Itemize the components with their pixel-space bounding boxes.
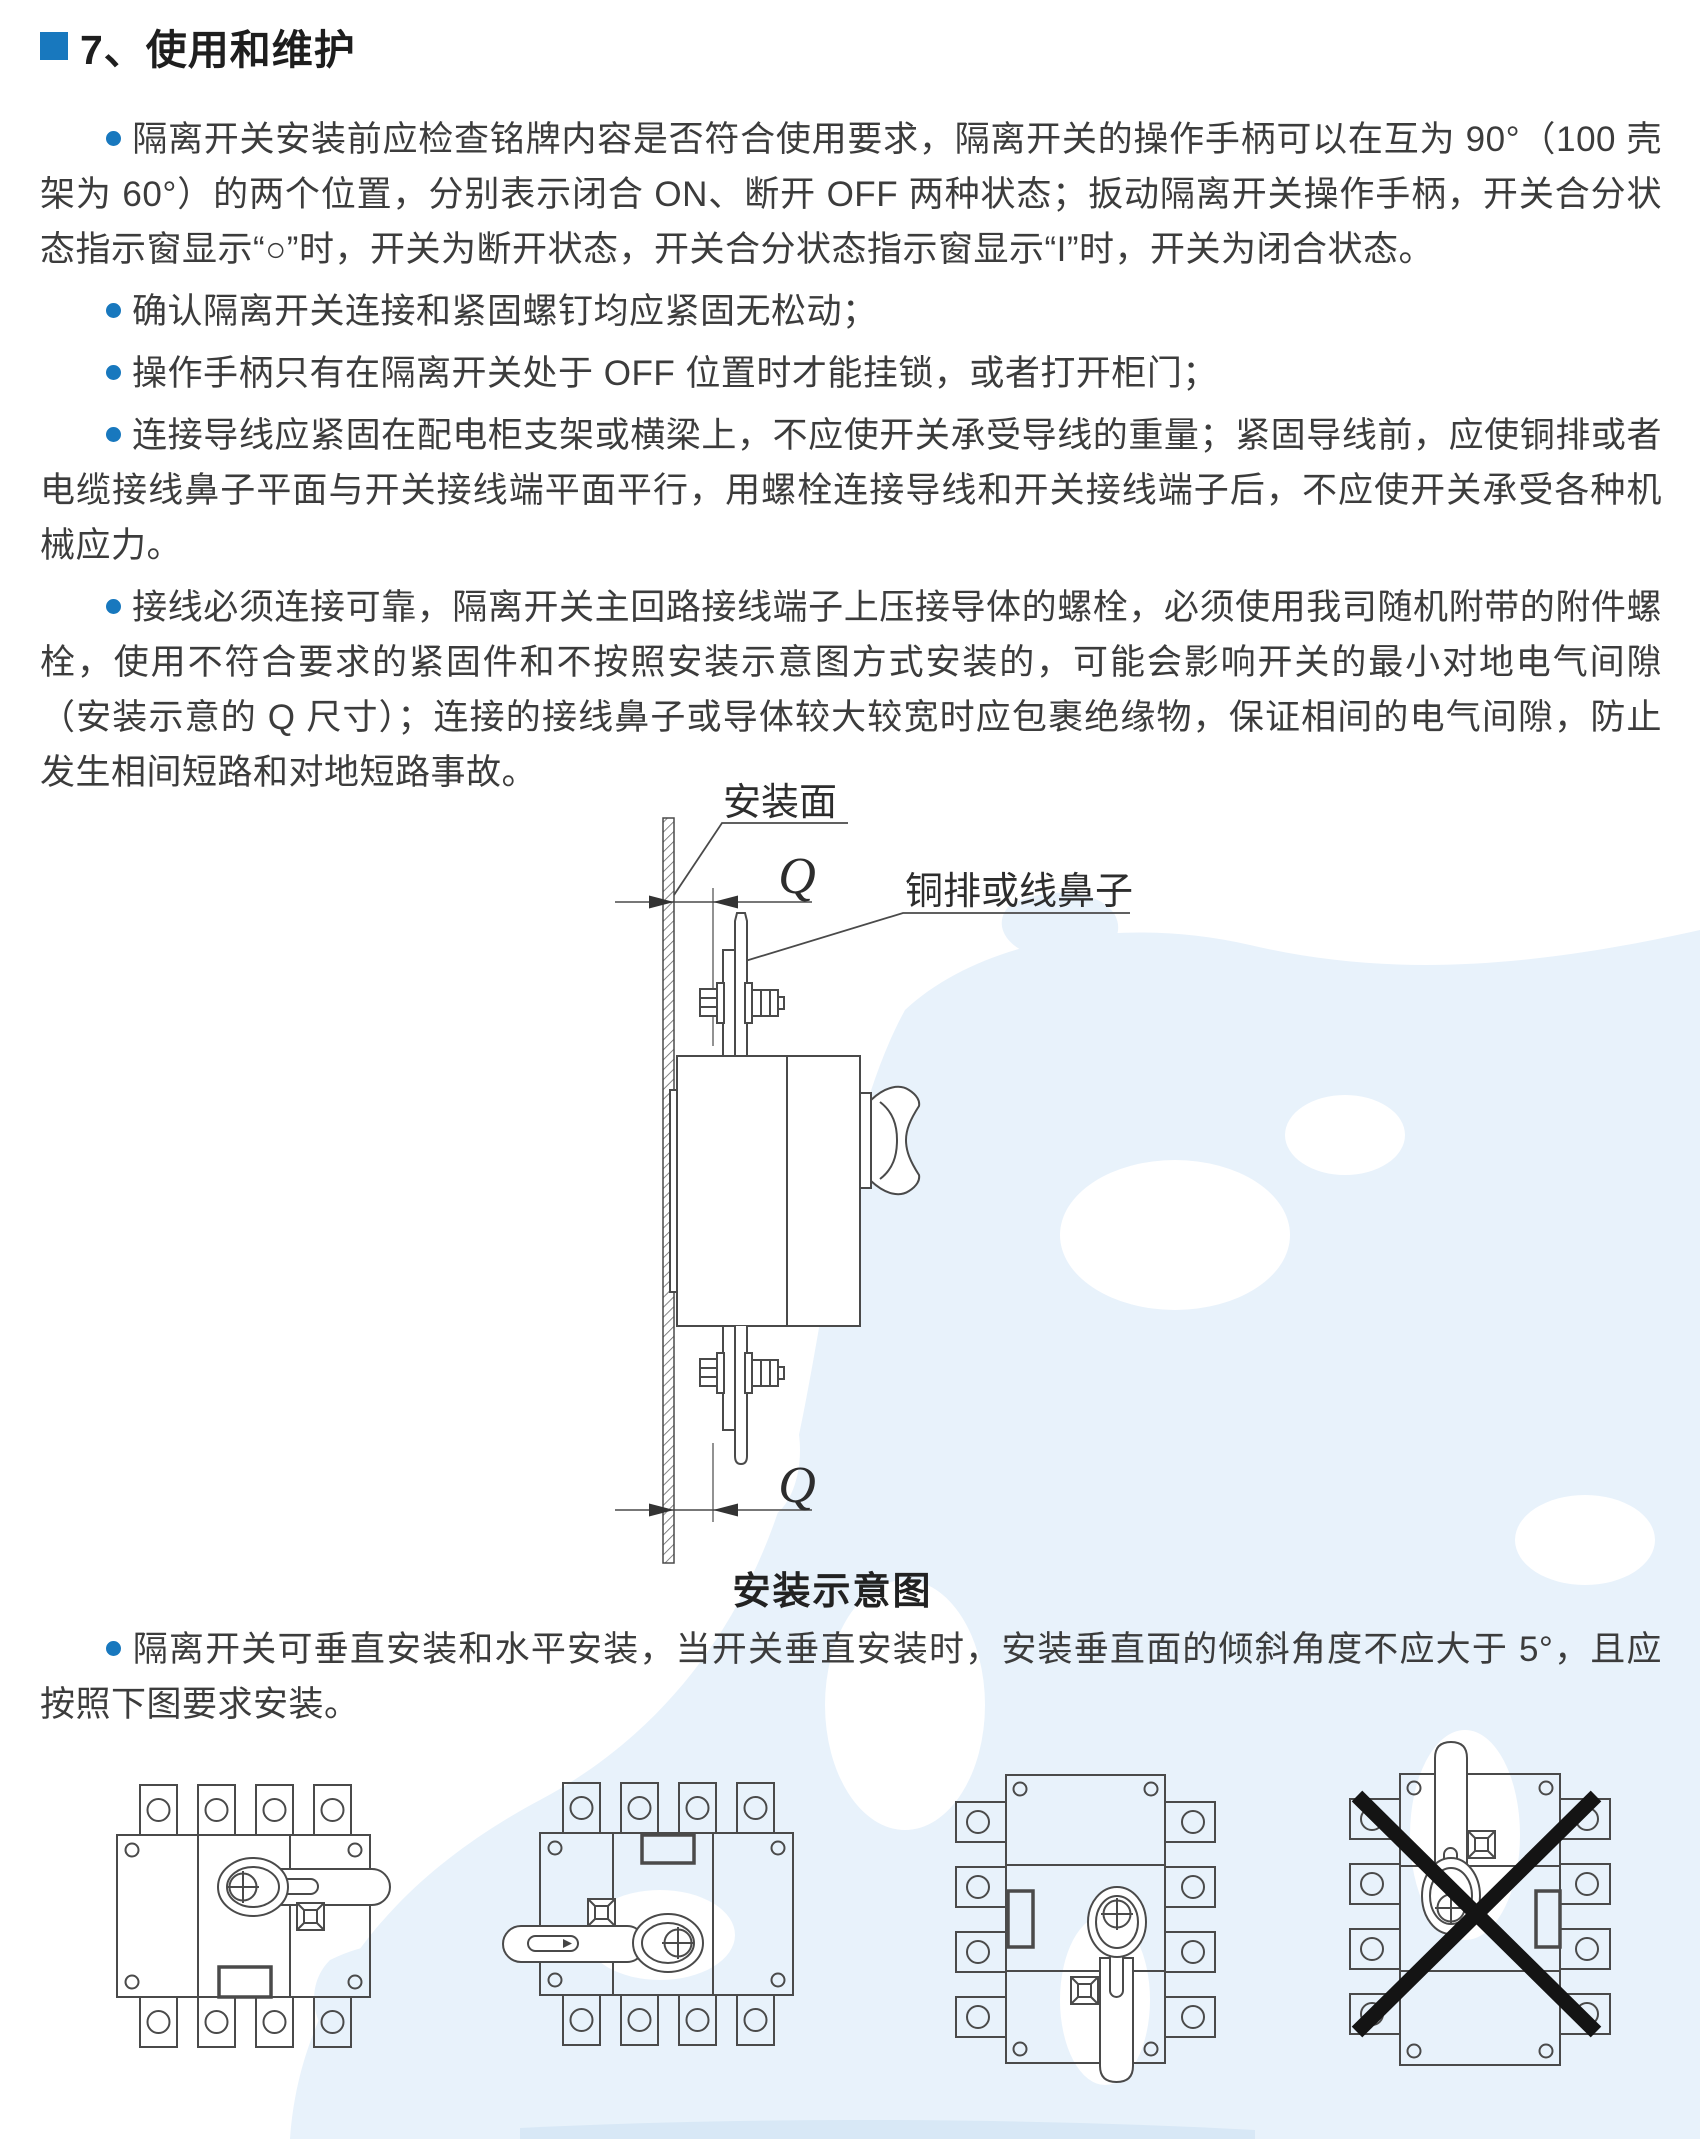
page-background: { "colors": { "accent_blue": "#1878be", … bbox=[0, 0, 1700, 2139]
bullet-paragraph: 隔离开关安装前应检查铭牌内容是否符合使用要求，隔离开关的操作手柄可以在互为 90… bbox=[40, 112, 1662, 277]
switch-handle-side bbox=[871, 1087, 919, 1194]
bullet-icon bbox=[106, 427, 121, 442]
vertical-install-paragraph-wrap: 隔离开关可垂直安装和水平安装，当开关垂直安装时，安装垂直面的倾斜角度不应大于 5… bbox=[40, 1622, 1662, 1739]
mounting-surface-leader bbox=[674, 823, 848, 895]
figure-vertical-handle-down bbox=[956, 1775, 1215, 2082]
orientation-figures bbox=[0, 1730, 1700, 2139]
section-marker-square-icon bbox=[40, 32, 68, 60]
bullet-paragraph: 确认隔离开关连接和紧固螺钉均应紧固无松动； bbox=[40, 284, 1662, 339]
q-dimension-top-label: Q bbox=[778, 848, 816, 905]
figure-horizontal-handle-right bbox=[117, 1785, 390, 2047]
bullet-paragraph: 连接导线应紧固在配电柜支架或横梁上，不应使开关承受导线的重量；紧固导线前，应使铜… bbox=[40, 408, 1662, 573]
section-header: 7、使用和维护 bbox=[40, 16, 1662, 76]
figure-horizontal-handle-left bbox=[503, 1783, 793, 2045]
q-dimension-top-group bbox=[615, 888, 812, 1046]
bullet-text: 隔离开关安装前应检查铭牌内容是否符合使用要求，隔离开关的操作手柄可以在互为 90… bbox=[40, 120, 1662, 269]
bullet-icon bbox=[106, 131, 121, 146]
bullet-paragraph: 操作手柄只有在隔离开关处于 OFF 位置时才能挂锁，或者打开柜门； bbox=[40, 346, 1662, 401]
bullet-text: 确认隔离开关连接和紧固螺钉均应紧固无松动； bbox=[132, 292, 878, 331]
q-dimension-bottom-label: Q bbox=[778, 1457, 816, 1514]
bullet-paragraph: 接线必须连接可靠，隔离开关主回路接线端子上压接导体的螺栓，必须使用我司随机附带的… bbox=[40, 580, 1662, 800]
bullet-icon bbox=[106, 599, 121, 614]
document-body: 7、使用和维护 隔离开关安装前应检查铭牌内容是否符合使用要求，隔离开关的操作手柄… bbox=[40, 16, 1662, 807]
bullet-icon bbox=[106, 303, 121, 318]
switch-body-side bbox=[670, 1056, 919, 1326]
bullet-text: 隔离开关可垂直安装和水平安装，当开关垂直安装时，安装垂直面的倾斜角度不应大于 5… bbox=[40, 1630, 1662, 1724]
busbar-leader bbox=[742, 913, 1130, 962]
busbar-label: 铜排或线鼻子 bbox=[905, 871, 1133, 913]
bullet-icon bbox=[106, 1641, 121, 1656]
bullet-text: 连接导线应紧固在配电柜支架或横梁上，不应使开关承受导线的重量；紧固导线前，应使铜… bbox=[40, 416, 1662, 565]
bullet-text: 操作手柄只有在隔离开关处于 OFF 位置时才能挂锁，或者打开柜门； bbox=[132, 354, 1218, 393]
installation-diagram: 安装面 铜排或线鼻子 Q Q bbox=[540, 770, 1180, 1610]
bullet-paragraph: 隔离开关可垂直安装和水平安装，当开关垂直安装时，安装垂直面的倾斜角度不应大于 5… bbox=[40, 1622, 1662, 1732]
bullet-text: 接线必须连接可靠，隔离开关主回路接线端子上压接导体的螺栓，必须使用我司随机附带的… bbox=[40, 588, 1662, 792]
diagram-caption: 安装示意图 bbox=[520, 1560, 1145, 1615]
section-title: 7、使用和维护 bbox=[80, 16, 356, 76]
bullet-icon bbox=[106, 365, 121, 380]
figure-vertical-handle-up-crossed bbox=[1350, 1742, 1610, 2065]
